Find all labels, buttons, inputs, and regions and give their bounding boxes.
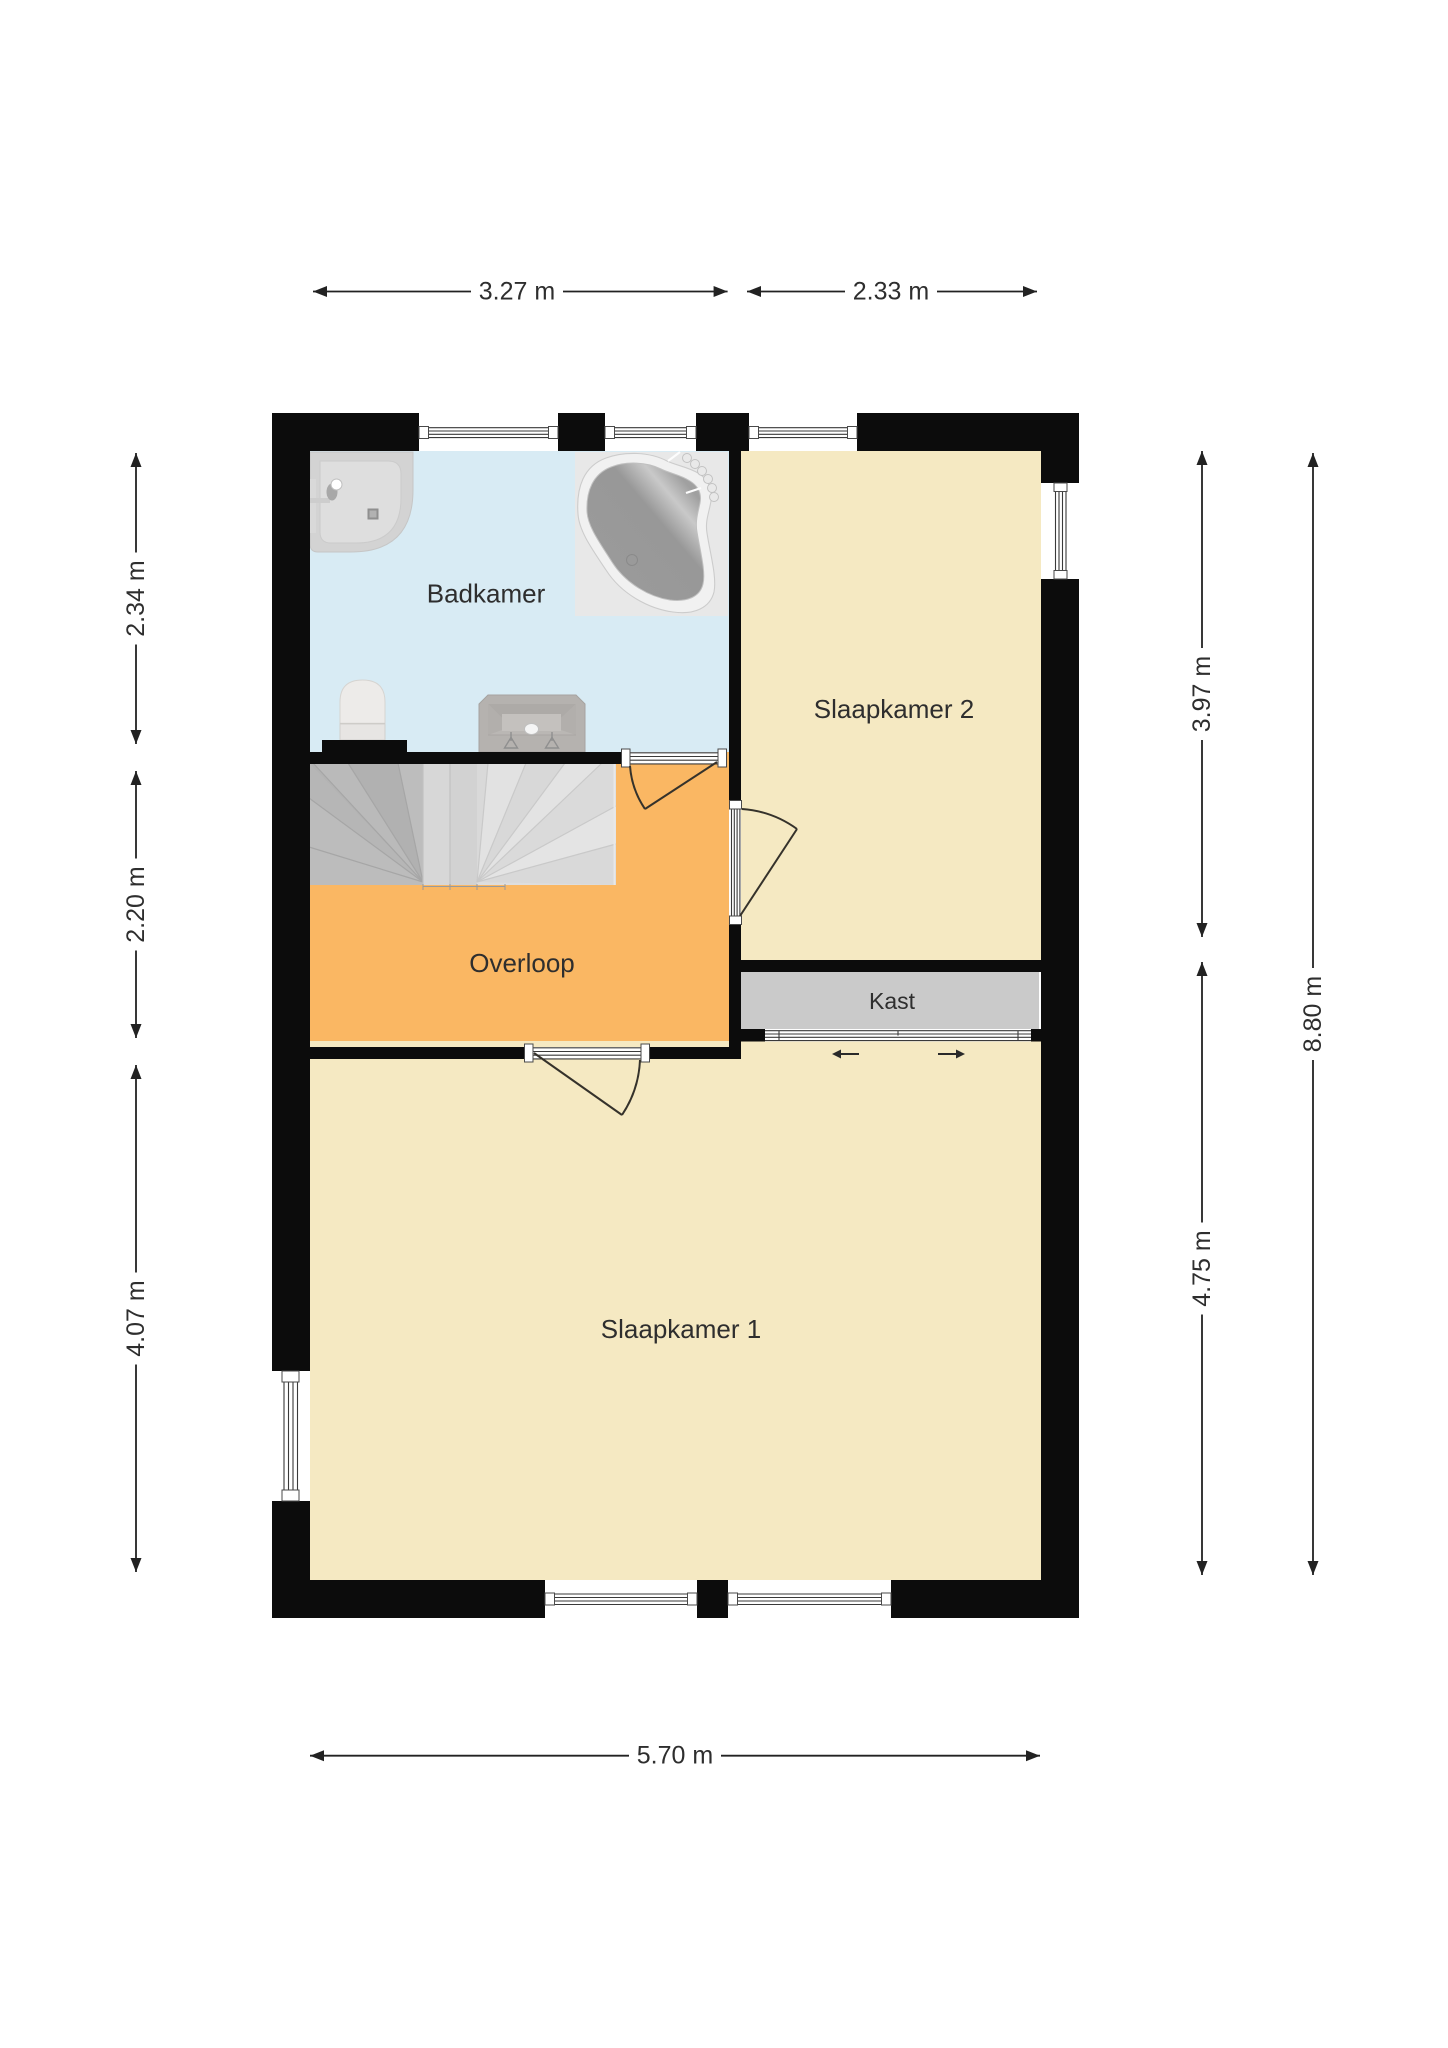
svg-text:Kast: Kast — [869, 988, 916, 1014]
svg-text:8.80 m: 8.80 m — [1299, 976, 1327, 1052]
svg-text:5.70 m: 5.70 m — [637, 1742, 713, 1770]
svg-text:2.20 m: 2.20 m — [122, 866, 150, 942]
svg-text:2.33 m: 2.33 m — [853, 278, 929, 306]
svg-text:4.75 m: 4.75 m — [1188, 1230, 1216, 1306]
svg-text:2.34 m: 2.34 m — [122, 560, 150, 636]
svg-text:Slaapkamer 1: Slaapkamer 1 — [601, 1314, 761, 1344]
svg-text:Slaapkamer 2: Slaapkamer 2 — [814, 694, 974, 724]
svg-text:Overloop: Overloop — [469, 948, 575, 978]
svg-text:Badkamer: Badkamer — [427, 579, 546, 609]
svg-text:3.97 m: 3.97 m — [1188, 656, 1216, 732]
svg-text:3.27 m: 3.27 m — [479, 278, 555, 306]
svg-text:4.07 m: 4.07 m — [122, 1280, 150, 1356]
